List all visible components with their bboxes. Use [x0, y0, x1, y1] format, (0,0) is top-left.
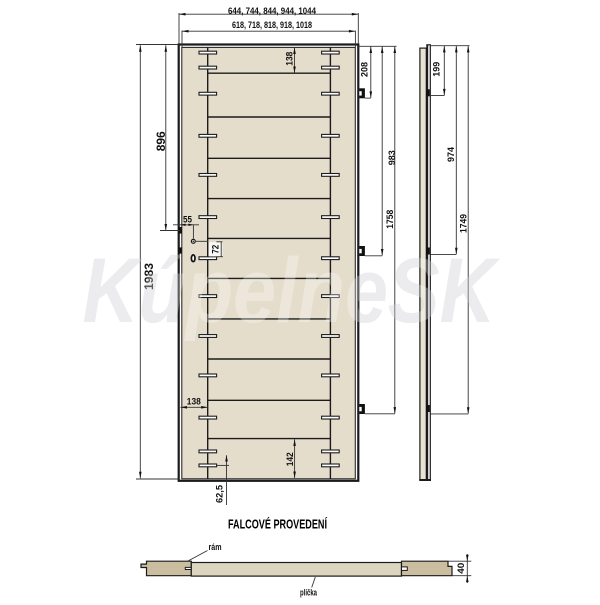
svg-text:rám: rám: [209, 542, 222, 552]
svg-text:40: 40: [456, 563, 467, 574]
svg-text:62,5: 62,5: [214, 484, 225, 503]
svg-text:138: 138: [187, 397, 201, 408]
svg-text:plíčka: plíčka: [300, 588, 318, 598]
svg-text:983: 983: [387, 150, 398, 165]
svg-text:618, 718, 818, 918, 1018: 618, 718, 818, 918, 1018: [232, 20, 312, 30]
svg-text:644, 744, 844, 944, 1044: 644, 744, 844, 944, 1044: [228, 6, 317, 16]
svg-text:FALCOVÉ PROVEDENÍ: FALCOVÉ PROVEDENÍ: [228, 517, 327, 532]
svg-text:208: 208: [360, 62, 371, 77]
svg-text:974: 974: [446, 146, 457, 162]
svg-text:138: 138: [285, 52, 296, 66]
svg-text:1749: 1749: [459, 214, 470, 233]
svg-text:896: 896: [156, 131, 168, 151]
svg-text:55: 55: [183, 214, 193, 225]
svg-text:199: 199: [432, 62, 443, 77]
svg-text:KúpelneSK: KúpelneSK: [83, 240, 502, 342]
svg-text:142: 142: [285, 452, 296, 466]
svg-text:1758: 1758: [385, 210, 396, 229]
